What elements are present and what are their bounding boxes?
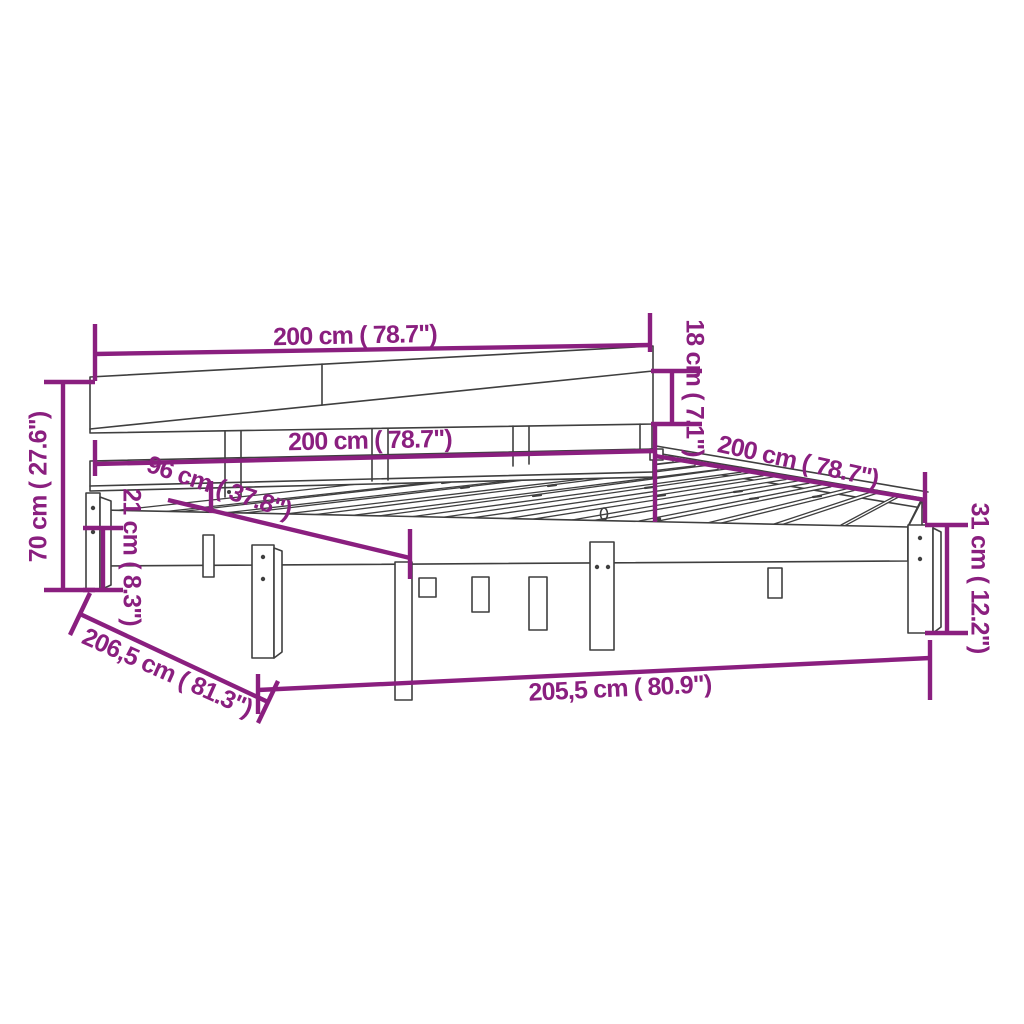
leg-front-right	[908, 525, 933, 633]
leg	[419, 578, 436, 597]
leg	[529, 577, 547, 630]
dimension-diagram: 200 cm ( 78.7") 18 cm ( 7.1") 70 cm ( 27…	[0, 0, 1024, 1024]
dim-leg-height-label: 21 cm ( 8.3")	[118, 488, 146, 626]
leg-center	[590, 542, 614, 650]
leg	[395, 562, 412, 700]
dim-frame-length: 205,5 cm ( 80.9")	[258, 640, 930, 714]
dim-overall-height-label: 70 cm ( 27.6")	[25, 411, 53, 562]
dim-overall-height: 70 cm ( 27.6")	[25, 382, 96, 590]
leg-front-right-side	[933, 528, 941, 633]
bed-frame-drawing	[86, 346, 941, 700]
dim-headboard-width-label: 200 cm ( 78.7")	[273, 320, 438, 351]
dim-overall-length: 206,5 cm ( 81.3")	[70, 593, 278, 723]
front-rail	[102, 510, 908, 566]
leg	[252, 545, 274, 658]
leg	[472, 577, 489, 612]
dim-inner-width-label: 200 cm ( 78.7")	[288, 425, 453, 456]
fitting-screw	[657, 517, 661, 521]
dim-base-height-label: 31 cm ( 12.2")	[966, 503, 994, 654]
leg	[203, 535, 214, 577]
dim-overall-length-label: 206,5 cm ( 81.3")	[78, 623, 257, 723]
dim-headboard-board-height: 18 cm ( 7.1")	[651, 319, 709, 457]
leg-side	[274, 548, 282, 658]
leg	[768, 568, 782, 598]
bed-frame-diagram-canvas: 200 cm ( 78.7") 18 cm ( 7.1") 70 cm ( 27…	[0, 0, 1024, 1024]
dim-headboard-board-height-label: 18 cm ( 7.1")	[681, 319, 709, 457]
